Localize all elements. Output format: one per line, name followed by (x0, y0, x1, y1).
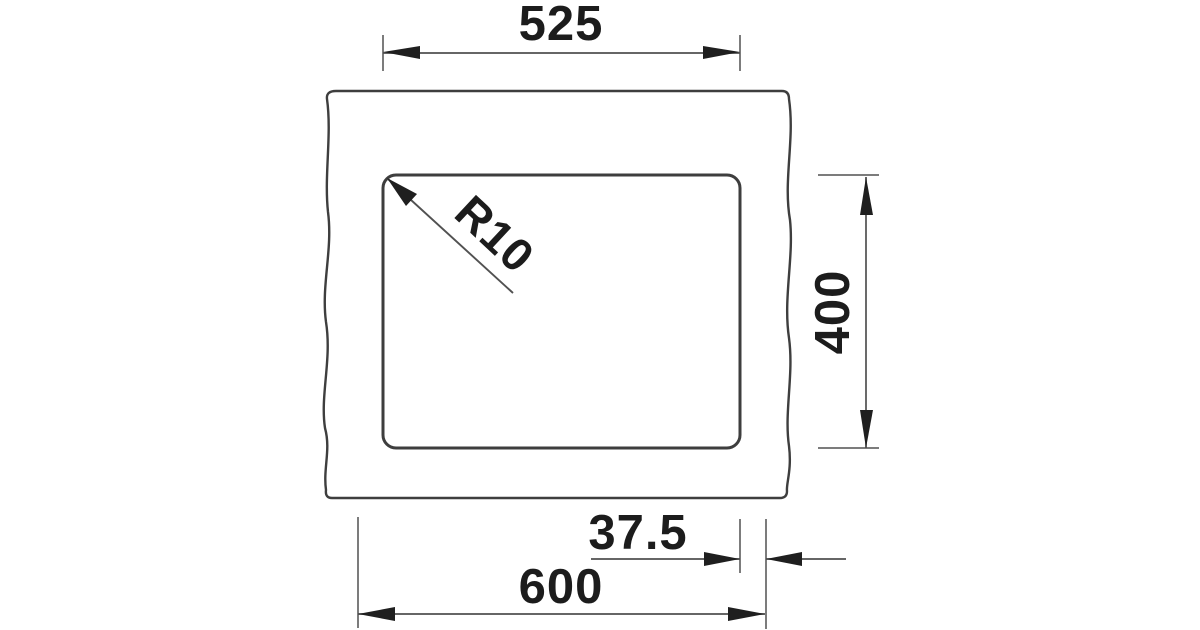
sink-cutout-technical-drawing: 525 R10 400 37.5 600 (0, 0, 1200, 630)
countertop-break-outline (324, 91, 791, 498)
arrow-cutout-width-right (728, 607, 765, 621)
label-corner-radius: R10 (445, 185, 544, 283)
label-bowl-depth: 400 (806, 270, 860, 355)
label-cutout-width: 600 (519, 560, 604, 614)
arrow-bowl-width-left (383, 46, 420, 59)
arrow-edge-offset-right (766, 552, 802, 566)
object-outlines (324, 91, 791, 498)
bowl-outline (383, 175, 740, 448)
arrow-bowl-depth-top (860, 177, 873, 215)
technical-drawing-page: 525 R10 400 37.5 600 (0, 0, 1200, 630)
label-bowl-width: 525 (519, 0, 604, 51)
label-edge-offset: 37.5 (588, 506, 687, 560)
arrow-cutout-width-left (358, 607, 395, 621)
arrow-edge-offset-left (704, 552, 740, 566)
arrow-bowl-width-right (703, 46, 740, 59)
arrow-bowl-depth-bottom (860, 410, 873, 448)
